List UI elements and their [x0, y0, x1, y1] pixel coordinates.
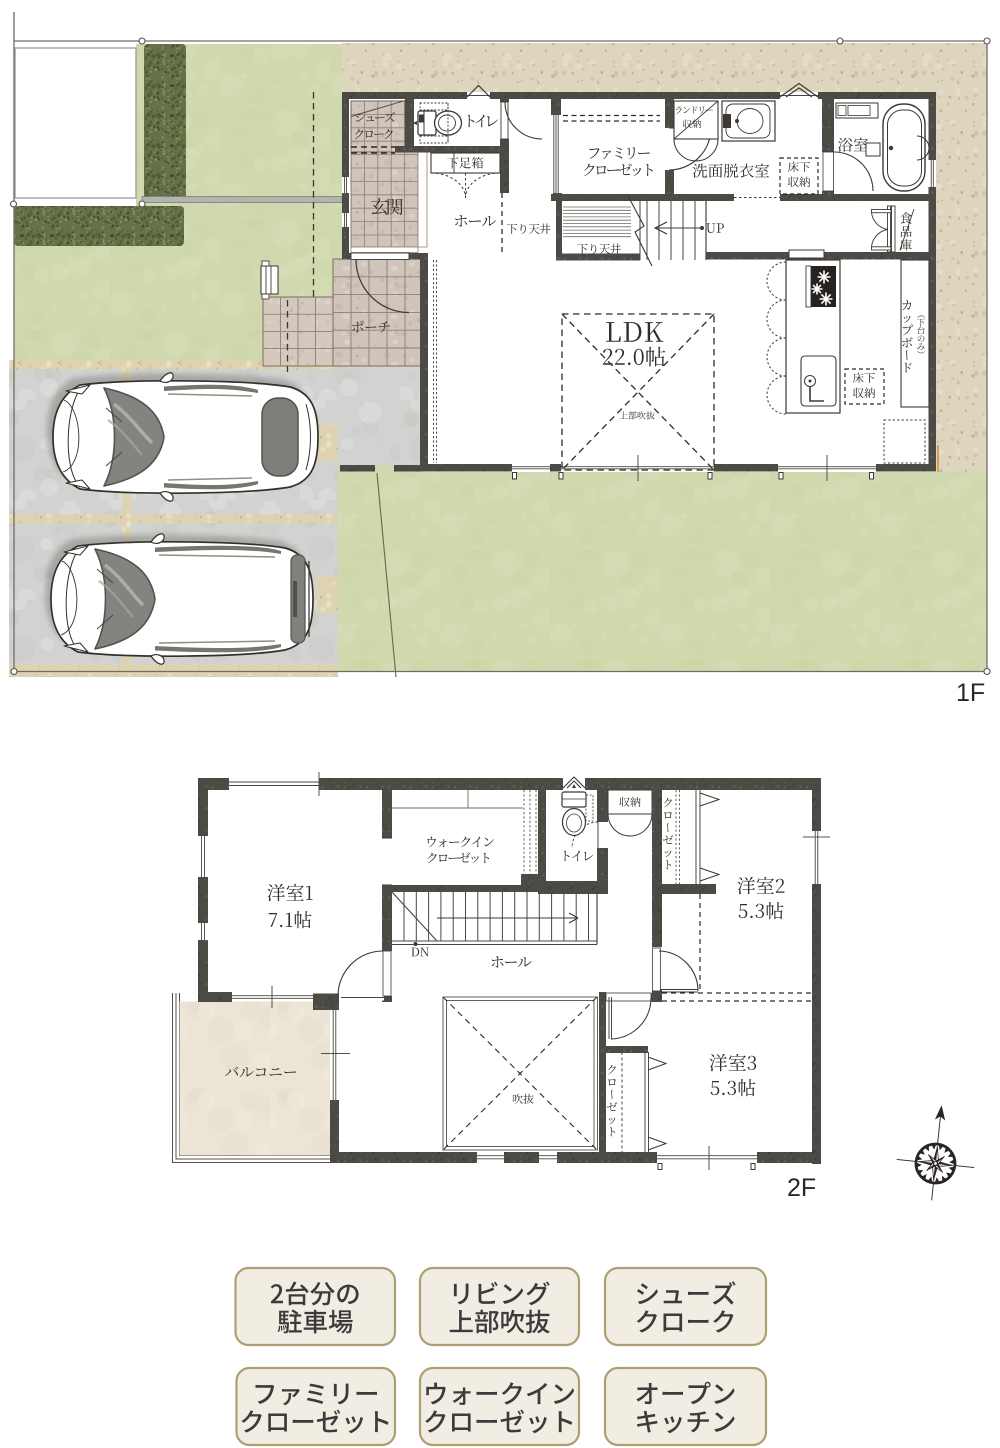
svg-text:2F: 2F [787, 1174, 816, 1202]
svg-text:1F: 1F [956, 679, 985, 707]
